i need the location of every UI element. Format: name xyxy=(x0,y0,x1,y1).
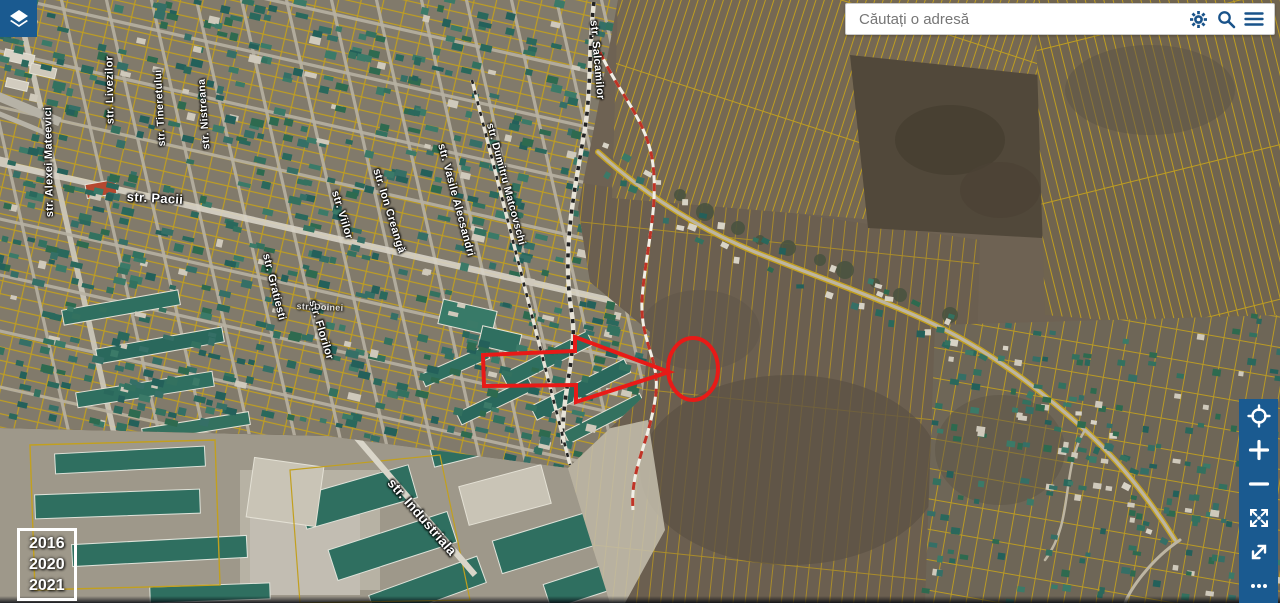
menu-icon[interactable] xyxy=(1240,5,1268,33)
layers-icon xyxy=(7,7,31,31)
year-item[interactable]: 2020 xyxy=(29,554,65,575)
bottom-vignette xyxy=(0,596,1280,603)
crosshair-icon xyxy=(1247,404,1271,428)
minus-icon xyxy=(1247,472,1271,496)
zoom-in-button[interactable] xyxy=(1239,433,1278,467)
default-extent-button[interactable] xyxy=(1239,501,1278,535)
expand-arrows-icon xyxy=(1247,506,1271,530)
zoom-out-button[interactable] xyxy=(1239,467,1278,501)
map-canvas[interactable] xyxy=(0,0,1280,603)
search-input[interactable] xyxy=(846,6,1184,32)
search-icon[interactable] xyxy=(1212,5,1240,33)
plus-icon xyxy=(1247,438,1271,462)
map-toolbar xyxy=(1239,399,1278,603)
locate-button[interactable] xyxy=(1239,399,1278,433)
fullscreen-button[interactable] xyxy=(1239,535,1278,569)
ellipsis-icon xyxy=(1247,574,1271,598)
more-button[interactable] xyxy=(1239,569,1278,603)
year-item[interactable]: 2016 xyxy=(29,533,65,554)
search-bar xyxy=(845,3,1275,35)
diagonal-arrows-icon xyxy=(1247,540,1271,564)
layers-panel-button[interactable] xyxy=(0,0,37,37)
settings-icon[interactable] xyxy=(1184,5,1212,33)
year-item[interactable]: 2021 xyxy=(29,575,65,596)
imagery-years-overlay: 2016 2020 2021 xyxy=(17,528,77,601)
map-app: str. Alexei Mateevicistr. Livezilorstr. … xyxy=(0,0,1280,603)
